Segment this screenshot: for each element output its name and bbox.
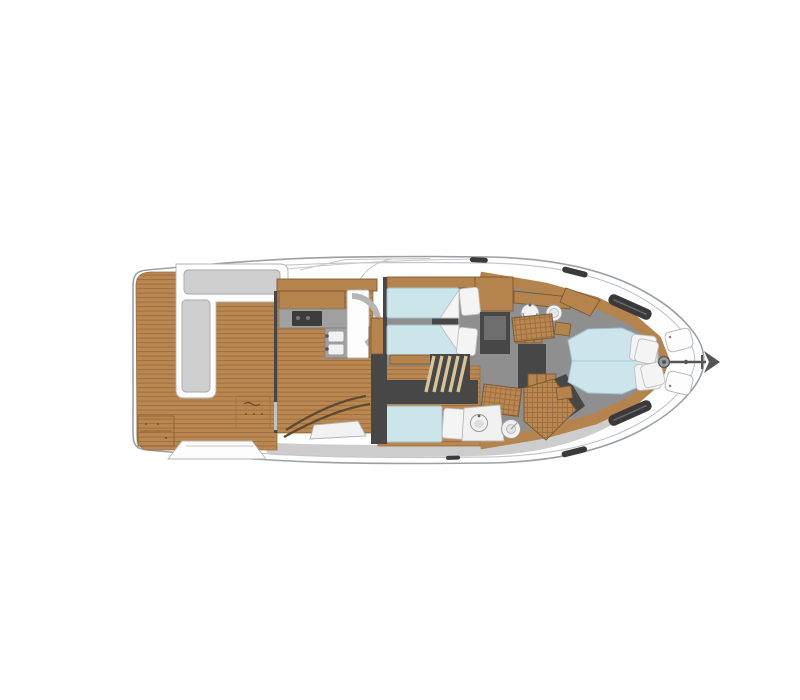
twin-cabin-wardrobe (475, 277, 513, 311)
berth-pillow (459, 287, 481, 316)
twin-cabin-top-trim (387, 277, 475, 288)
area-salon-galley (274, 279, 387, 439)
nightstand (556, 386, 573, 400)
cockpit-table (236, 396, 270, 428)
settee-cushion-top (184, 270, 280, 294)
single-berth (380, 406, 442, 442)
area-bow-deck (659, 327, 721, 396)
windlass (659, 357, 670, 368)
main-bulkhead (371, 352, 387, 444)
boarding-step (168, 441, 266, 459)
cooktop (292, 311, 322, 326)
settee-cushion-side (182, 300, 210, 392)
toilet-mid (502, 420, 521, 439)
transom-locker-steps (138, 416, 174, 446)
bulkhead-cabinet (371, 318, 385, 354)
nightstand (554, 322, 571, 336)
companionway-stairs (426, 354, 470, 394)
twin-cabin-bulkhead (383, 277, 387, 365)
twin-berth-2 (387, 325, 478, 356)
shower-grate-forward (512, 314, 554, 342)
washbasin-mid (471, 415, 488, 432)
galley-upper-cabinet (279, 291, 345, 309)
salon-top-trim (277, 279, 377, 291)
twin-berth-1 (387, 287, 481, 318)
floor-plan-canvas (0, 0, 800, 700)
salon-door-gap (274, 402, 277, 430)
area-cockpit (136, 264, 288, 450)
yacht-floor-plan (0, 0, 800, 700)
berth-pillow (456, 327, 478, 356)
